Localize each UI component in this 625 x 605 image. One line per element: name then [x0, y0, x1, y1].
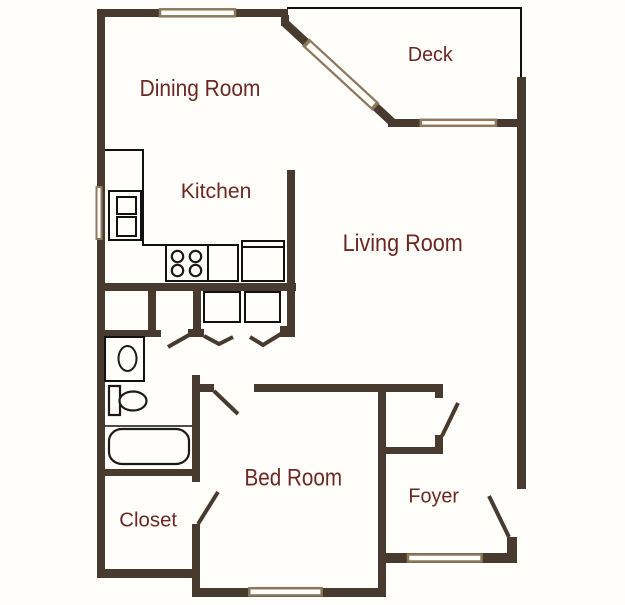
svg-text:Bed Room: Bed Room: [245, 465, 343, 491]
svg-text:Deck: Deck: [408, 44, 454, 66]
svg-text:Dining Room: Dining Room: [140, 75, 261, 101]
svg-text:Closet: Closet: [119, 510, 177, 532]
svg-text:Living Room: Living Room: [343, 231, 463, 257]
svg-text:Kitchen: Kitchen: [181, 180, 252, 203]
svg-text:Foyer: Foyer: [408, 486, 459, 508]
